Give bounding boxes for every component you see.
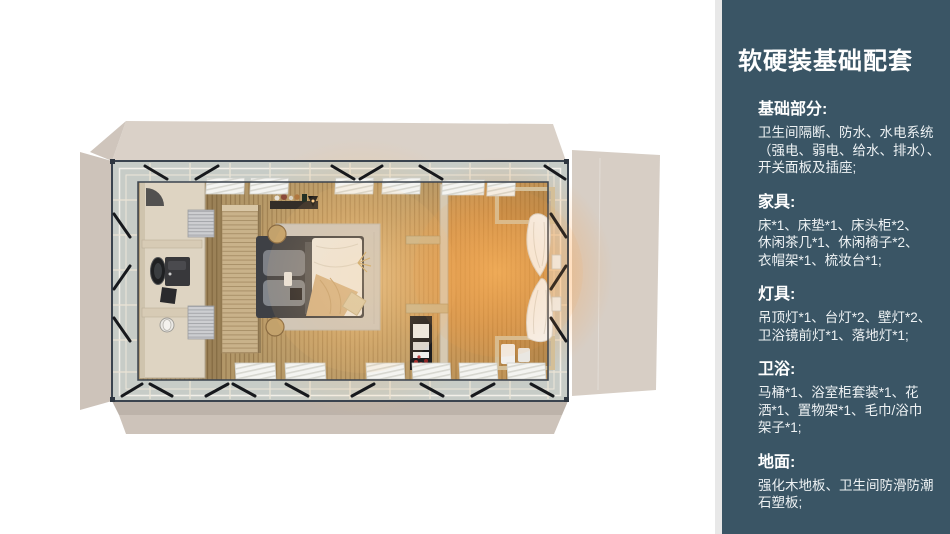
vanity-mirror bbox=[151, 258, 166, 285]
spec-heading: 地面: bbox=[758, 453, 936, 473]
spec-line: 衣帽架*1、梳妆台*1; bbox=[758, 252, 936, 270]
towel-radiator-top bbox=[188, 210, 214, 237]
spec-line: 架子*1; bbox=[758, 419, 936, 437]
info-panel: 软硬装基础配套 基础部分: 卫生间隔断、防水、水电系统 （强电、弱电、给水、排水… bbox=[715, 0, 950, 534]
warm-lamp-glow bbox=[267, 183, 583, 373]
spec-line: 卫浴镜前灯*1、落地灯*1; bbox=[758, 327, 936, 345]
bathroom bbox=[140, 182, 214, 378]
spec-section-bathroom: 卫浴: 马桶*1、浴室柜套装*1、花 洒*1、置物架*1、毛巾/浴巾 架子*1; bbox=[758, 360, 936, 437]
spec-heading: 家具: bbox=[758, 193, 936, 213]
spec-line: 洒*1、置物架*1、毛巾/浴巾 bbox=[758, 402, 936, 420]
spec-section-flooring: 地面: 强化木地板、卫生间防滑防潮 石塑板; bbox=[758, 453, 936, 512]
spec-line: 吊顶灯*1、台灯*2、壁灯*2、 bbox=[758, 309, 936, 327]
spec-line: 休闲茶几*1、休闲椅子*2、 bbox=[758, 234, 936, 252]
panel-left-edge bbox=[715, 0, 722, 534]
spec-line: 开关面板及插座; bbox=[758, 159, 936, 177]
toilet bbox=[160, 318, 174, 332]
spec-heading: 灯具: bbox=[758, 285, 936, 305]
spec-line: 强化木地板、卫生间防滑防潮 bbox=[758, 477, 936, 495]
room-top-view bbox=[0, 0, 718, 534]
room-render bbox=[0, 0, 718, 534]
headboard-wall bbox=[222, 205, 261, 353]
panel-title: 软硬装基础配套 bbox=[738, 46, 936, 78]
spec-line: 马桶*1、浴室柜套装*1、花 bbox=[758, 384, 936, 402]
spec-line: 石塑板; bbox=[758, 494, 936, 512]
towel-radiator-bottom bbox=[188, 306, 214, 339]
spec-section-basics: 基础部分: 卫生间隔断、防水、水电系统 （强电、弱电、给水、排水）、 开关面板及… bbox=[758, 100, 936, 177]
spec-heading: 基础部分: bbox=[758, 100, 936, 120]
spec-section-lighting: 灯具: 吊顶灯*1、台灯*2、壁灯*2、 卫浴镜前灯*1、落地灯*1; bbox=[758, 285, 936, 344]
spec-section-furniture: 家具: 床*1、床垫*1、床头柜*2、 休闲茶几*1、休闲椅子*2、 衣帽架*1… bbox=[758, 193, 936, 270]
spec-line: 床*1、床垫*1、床头柜*2、 bbox=[758, 217, 936, 235]
slide-canvas: 软硬装基础配套 基础部分: 卫生间隔断、防水、水电系统 （强电、弱电、给水、排水… bbox=[0, 0, 950, 534]
spec-heading: 卫浴: bbox=[758, 360, 936, 380]
spec-line: 卫生间隔断、防水、水电系统 bbox=[758, 124, 936, 142]
spec-line: （强电、弱电、给水、排水）、 bbox=[758, 142, 936, 160]
